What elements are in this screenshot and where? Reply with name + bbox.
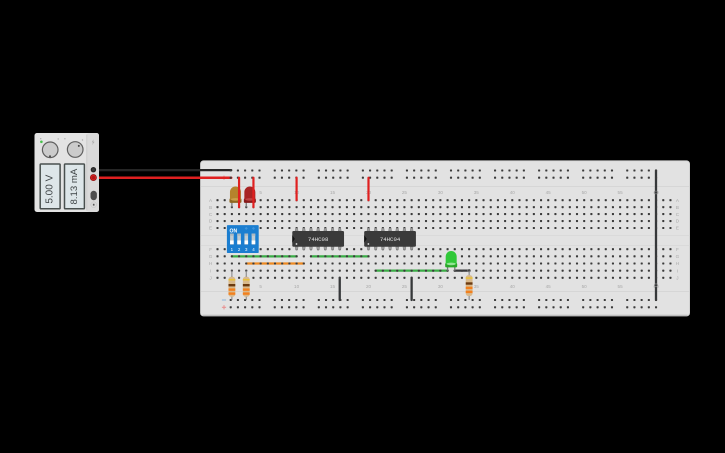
svg-text:I: I bbox=[210, 268, 211, 273]
svg-text:55: 55 bbox=[618, 284, 624, 289]
svg-text:G: G bbox=[209, 254, 213, 259]
svg-text:F: F bbox=[676, 247, 679, 252]
svg-text:30: 30 bbox=[438, 284, 444, 289]
svg-text:25: 25 bbox=[402, 190, 408, 195]
svg-text:35: 35 bbox=[474, 190, 480, 195]
svg-text:50: 50 bbox=[582, 284, 588, 289]
svg-text:E: E bbox=[676, 226, 679, 231]
svg-text:20: 20 bbox=[366, 284, 372, 289]
svg-text:25: 25 bbox=[402, 284, 408, 289]
svg-text:H: H bbox=[676, 261, 679, 266]
svg-text:50: 50 bbox=[582, 190, 588, 195]
svg-text:J: J bbox=[676, 276, 678, 281]
svg-text:40: 40 bbox=[510, 190, 516, 195]
svg-text:F: F bbox=[209, 247, 212, 252]
svg-text:45: 45 bbox=[546, 284, 552, 289]
svg-text:74HC04: 74HC04 bbox=[380, 236, 401, 243]
svg-text:10: 10 bbox=[294, 284, 300, 289]
svg-text:B: B bbox=[209, 205, 212, 210]
svg-text:15: 15 bbox=[330, 284, 336, 289]
svg-text:B: B bbox=[676, 205, 679, 210]
svg-text:74HC08: 74HC08 bbox=[308, 236, 329, 243]
svg-text:5.00 V: 5.00 V bbox=[45, 174, 56, 203]
svg-text:45: 45 bbox=[546, 190, 552, 195]
svg-text:G: G bbox=[676, 254, 680, 259]
svg-text:15: 15 bbox=[330, 190, 336, 195]
svg-text:5: 5 bbox=[259, 284, 262, 289]
svg-text:E: E bbox=[209, 226, 212, 231]
svg-text:I: I bbox=[677, 268, 678, 273]
svg-text:35: 35 bbox=[474, 284, 480, 289]
svg-text:5: 5 bbox=[259, 190, 262, 195]
svg-text:8.13 mA: 8.13 mA bbox=[69, 168, 80, 204]
svg-text:H: H bbox=[209, 261, 212, 266]
svg-text:J: J bbox=[209, 276, 211, 281]
svg-text:30: 30 bbox=[438, 190, 444, 195]
svg-text:55: 55 bbox=[618, 190, 624, 195]
svg-text:40: 40 bbox=[510, 284, 516, 289]
